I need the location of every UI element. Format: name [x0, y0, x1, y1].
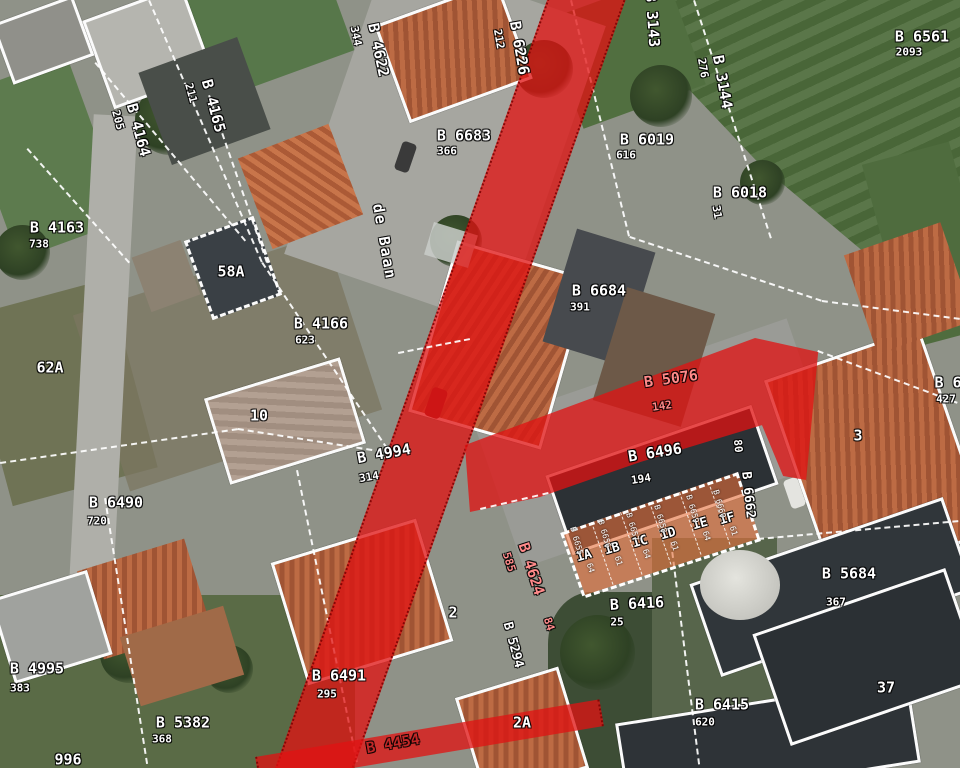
parcel-area-label: 64 — [641, 548, 651, 559]
parcel-label: B 4624 — [515, 541, 546, 597]
house-number-label: 10 — [250, 409, 268, 424]
parcel-label: B 5294 — [501, 621, 526, 670]
parcel-label: B 4165 — [199, 78, 228, 134]
parcel-area-label: 80 — [732, 439, 744, 453]
parcel-label: B 6496 — [627, 441, 683, 464]
parcel-area-label: 427 — [936, 394, 956, 405]
parcel-area-label: 295 — [317, 689, 337, 700]
parcel-label: B 6683 — [437, 129, 491, 144]
house-number-label: 2 — [448, 606, 457, 621]
parcel-label: B 6491 — [312, 669, 366, 684]
parcel-area-label: 61 — [669, 540, 679, 551]
parcel-label: B 6 — [934, 376, 960, 391]
parcel-label: B 6660 — [711, 489, 727, 519]
labels-layer: B 4622344B 6226212B 3143B 3144276B 65612… — [0, 0, 960, 768]
parcel-area-label: 314 — [358, 470, 379, 484]
parcel-area-label: 367 — [826, 597, 846, 608]
parcel-area-label: 623 — [295, 335, 315, 346]
parcel-label: B 4166 — [294, 317, 348, 332]
parcel-area-label: 738 — [29, 239, 49, 250]
parcel-area-label: 211 — [183, 82, 199, 104]
parcel-area-label: 212 — [492, 28, 506, 49]
parcel-label: B 3144 — [710, 54, 734, 110]
parcel-area-label: 31 — [710, 205, 723, 220]
parcel-label: B 6655 — [568, 526, 584, 556]
parcel-label: B 4995 — [10, 662, 64, 677]
parcel-label: B 6416 — [610, 595, 665, 613]
parcel-area-label: 61 — [728, 525, 738, 536]
parcel-area-label: 585 — [501, 551, 518, 573]
parcel-area-label: 391 — [570, 302, 590, 313]
parcel-label: B 6226 — [507, 20, 531, 76]
parcel-label: B 6659 — [684, 494, 700, 524]
parcel-area-label: 61 — [613, 555, 623, 566]
parcel-label: B 5684 — [822, 567, 876, 582]
parcel-label: B 6490 — [89, 496, 143, 511]
house-number-label: 2A — [513, 716, 531, 731]
house-number-label: 3 — [853, 429, 862, 444]
parcel-label: B 5076 — [643, 368, 699, 390]
street-name-label: de Baan — [370, 203, 398, 282]
parcel-label: B 6656 — [596, 519, 612, 549]
parcel-area-label: 276 — [696, 57, 710, 78]
parcel-label: B 6561 — [895, 30, 949, 45]
parcel-area-label: 2093 — [896, 47, 923, 58]
parcel-label: B 4163 — [30, 221, 84, 236]
parcel-area-label: 383 — [10, 683, 30, 694]
parcel-area-label: 616 — [616, 150, 636, 161]
house-number-label: 37 — [877, 681, 895, 696]
parcel-label: B 6415 — [695, 698, 749, 713]
parcel-area-label: 368 — [152, 734, 172, 745]
parcel-label: B 4622 — [365, 22, 391, 78]
parcel-area-label: 25 — [610, 617, 623, 628]
house-number-label: 62A — [36, 361, 63, 376]
parcel-label: B 6018 — [713, 186, 767, 201]
parcel-label: 996 — [54, 753, 81, 768]
parcel-label: B 4994 — [356, 442, 412, 466]
parcel-area-label: 64 — [585, 562, 595, 573]
parcel-label: B 6658 — [652, 504, 668, 534]
parcel-label: B 3143 — [643, 0, 662, 48]
parcel-label: B 6019 — [620, 133, 674, 148]
parcel-area-label: 142 — [651, 399, 672, 413]
parcel-label: B 5382 — [156, 716, 210, 731]
parcel-area-label: 720 — [87, 516, 107, 527]
parcel-area-label: 366 — [437, 146, 457, 157]
parcel-area-label: 620 — [695, 717, 715, 728]
parcel-label: B 6657 — [624, 512, 640, 542]
parcel-label: B 6662 — [739, 471, 757, 519]
house-number-label: 58A — [217, 265, 244, 280]
parcel-label: B 6684 — [572, 284, 626, 299]
parcel-area-label: 194 — [630, 472, 651, 486]
parcel-label: B 4454 — [365, 732, 421, 756]
map-canvas[interactable]: B 4622344B 6226212B 3143B 3144276B 65612… — [0, 0, 960, 768]
parcel-label: B 4164 — [124, 102, 153, 158]
parcel-area-label: 344 — [349, 25, 364, 47]
parcel-area-label: 84 — [542, 616, 557, 632]
parcel-area-label: 64 — [701, 530, 711, 541]
